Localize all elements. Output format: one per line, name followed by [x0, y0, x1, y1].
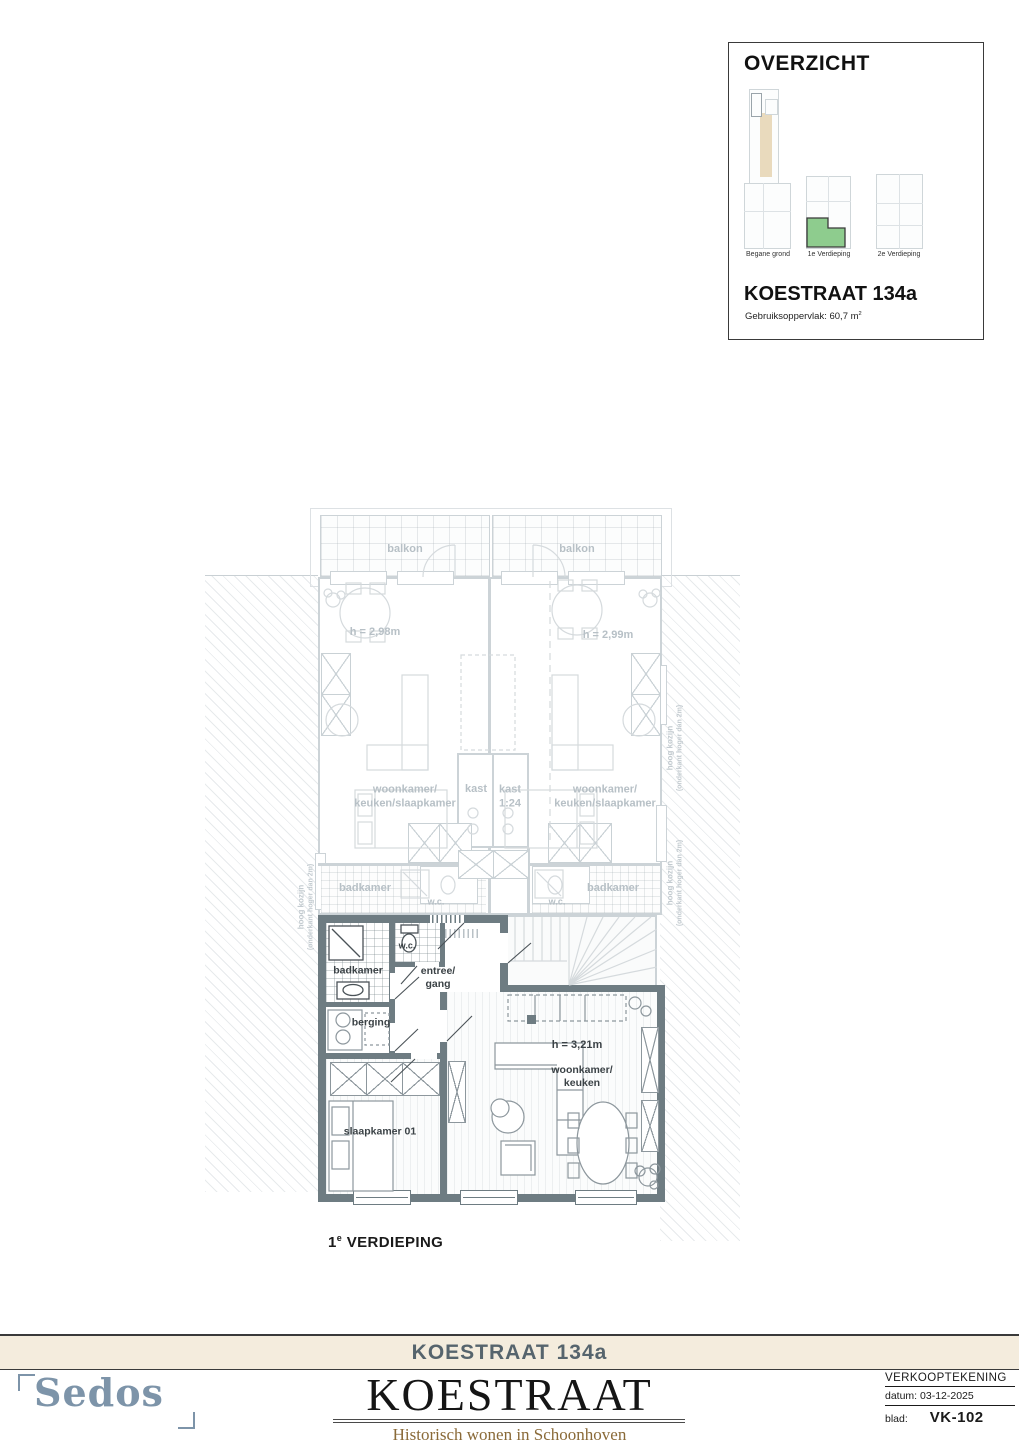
label-wc-muted-left: w.c. [428, 896, 445, 907]
label-badkamer: badkamer [333, 964, 383, 977]
label-hoog-kozijn-right-1: hoog kozijn (onderkant hoger dan 2m) [665, 705, 684, 791]
bathroom-fixtures [329, 925, 418, 999]
label-slaapkamer: slaapkamer 01 [344, 1125, 416, 1138]
overview-address: KOESTRAAT 134a [744, 283, 917, 306]
mini-label-2e-verdieping: 2e Verdieping [878, 251, 921, 258]
overview-title: OVERZICHT [744, 52, 870, 76]
stamp-sheet: blad: VK-102 [885, 1406, 1015, 1426]
label-badkamer-muted-left: badkamer [339, 882, 391, 896]
stamp-sheet-label: blad: [885, 1413, 908, 1425]
mini-bg-beige-strip [760, 113, 772, 177]
floor-plan: balkon balkon h = 2,98m h = 2,99m woonka… [205, 505, 740, 1215]
label-room-left: woonkamer/ keuken/slaapkamer [354, 783, 456, 811]
mini-label-begane-grond: Begane grond [746, 251, 790, 258]
label-height-main: h = 3,21m [552, 1039, 602, 1053]
label-wc: w.c. [399, 940, 416, 951]
overview-area: Gebruiksoppervlak: 60,7 m2 [745, 311, 862, 322]
project-title: KOESTRAAT [0, 1372, 1019, 1418]
label-room-right: woonkamer/ keuken/slaapkamer [554, 783, 656, 811]
floor-title: 1e VERDIEPING [328, 1233, 443, 1251]
label-woonkamer: woonkamer/ keuken [551, 1064, 612, 1090]
label-balkon-right: balkon [559, 543, 594, 557]
label-badkamer-muted-right: badkamer [587, 882, 639, 896]
drawing-stamp: VERKOOPTEKENING datum: 03-12-2025 blad: … [885, 1372, 1015, 1426]
mini-highlight-unit [806, 217, 851, 249]
label-kast-left: kast [465, 783, 487, 797]
overview-panel: OVERZICHT Begane grond [728, 42, 984, 340]
mini-label-1e-verdieping: 1e Verdieping [808, 251, 851, 258]
label-hoog-kozijn-right-2: hoog kozijn (onderkant hoger dan 2m) [665, 840, 684, 926]
label-kast-right: kast 1:24 [499, 783, 521, 811]
plan-decoration-layer [205, 505, 740, 1215]
label-hoog-kozijn-left: hoog kozijn (onderkant hoger dan 2m) [296, 864, 315, 950]
stamp-sheet-value: VK-102 [930, 1409, 984, 1426]
label-height-right: h = 2,99m [583, 629, 633, 643]
sales-drawing-page: OVERZICHT Begane grond [0, 0, 1019, 1440]
address-bar: KOESTRAAT 134a [0, 1334, 1019, 1370]
project-subtitle: Historisch wonen in Schoonhoven [0, 1425, 1019, 1440]
stamp-date: datum: 03-12-2025 [885, 1387, 1015, 1406]
label-balkon-left: balkon [387, 543, 422, 557]
label-entree: entree/ gang [421, 965, 455, 991]
stamp-doc-type: VERKOOPTEKENING [885, 1372, 1015, 1387]
title-double-rule [333, 1419, 685, 1423]
label-berging: berging [352, 1016, 391, 1029]
muted-furniture [324, 545, 660, 985]
label-wc-muted-right: w.c. [549, 896, 566, 907]
label-height-left: h = 2,98m [350, 626, 400, 640]
